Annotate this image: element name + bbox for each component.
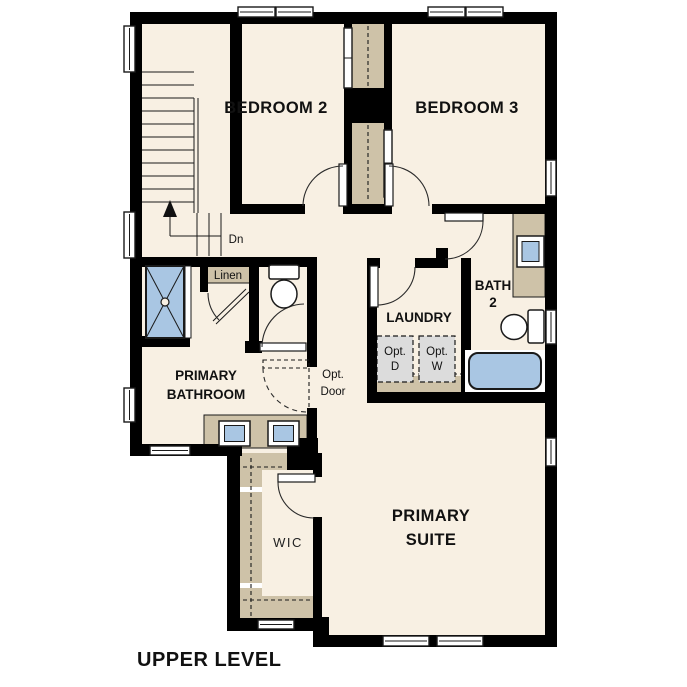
sink — [219, 421, 250, 446]
shower — [146, 266, 191, 338]
bedroom3-label: BEDROOM 3 — [415, 99, 519, 117]
optional-washer-box — [419, 336, 455, 382]
window — [546, 310, 556, 344]
window — [258, 620, 294, 629]
opt-washer-label-1: Opt. — [426, 346, 448, 358]
primary-suite-label-2: SUITE — [406, 531, 457, 549]
primary-suite-label-1: PRIMARY — [392, 507, 470, 525]
window — [150, 446, 190, 455]
floor-plan: BEDROOM 2 BEDROOM 3 Dn Linen PRIMARY BAT… — [0, 0, 687, 687]
sink — [517, 236, 544, 267]
stairs-dn-label: Dn — [229, 234, 244, 246]
bath2-label-1: BATH — [475, 278, 512, 293]
window — [546, 438, 556, 466]
floor-plan-canvas: BEDROOM 2 BEDROOM 3 Dn Linen PRIMARY BAT… — [0, 0, 687, 687]
closet-slider-door — [344, 28, 352, 88]
toilet — [269, 265, 299, 308]
bedroom2-label: BEDROOM 2 — [224, 99, 328, 117]
wic-label: WIC — [273, 535, 303, 550]
primary-bathroom-label-1: PRIMARY — [175, 368, 237, 383]
window — [546, 160, 556, 196]
window — [124, 212, 135, 258]
window — [437, 636, 483, 646]
window — [124, 26, 135, 72]
opt-door-label-1: Opt. — [322, 369, 344, 381]
window — [276, 7, 313, 17]
optional-dryer-box — [377, 336, 413, 382]
plan-title: UPPER LEVEL — [137, 649, 281, 671]
opt-dryer-label-2: D — [391, 361, 399, 373]
window — [428, 7, 465, 17]
primary-bathroom-label-2: BATHROOM — [167, 387, 246, 402]
window — [466, 7, 503, 17]
window — [383, 636, 429, 646]
window — [124, 388, 135, 422]
opt-door-label-2: Door — [321, 386, 346, 398]
opt-washer-label-2: W — [432, 361, 443, 373]
bathtub — [465, 350, 545, 392]
laundry-label: LAUNDRY — [386, 310, 452, 325]
linen-label: Linen — [214, 270, 242, 282]
shower-drain — [161, 298, 169, 306]
opt-dryer-label-1: Opt. — [384, 346, 406, 358]
window — [238, 7, 275, 17]
bath2-label-2: 2 — [489, 295, 497, 310]
shower-glass-door — [185, 266, 191, 338]
sink — [268, 421, 299, 446]
